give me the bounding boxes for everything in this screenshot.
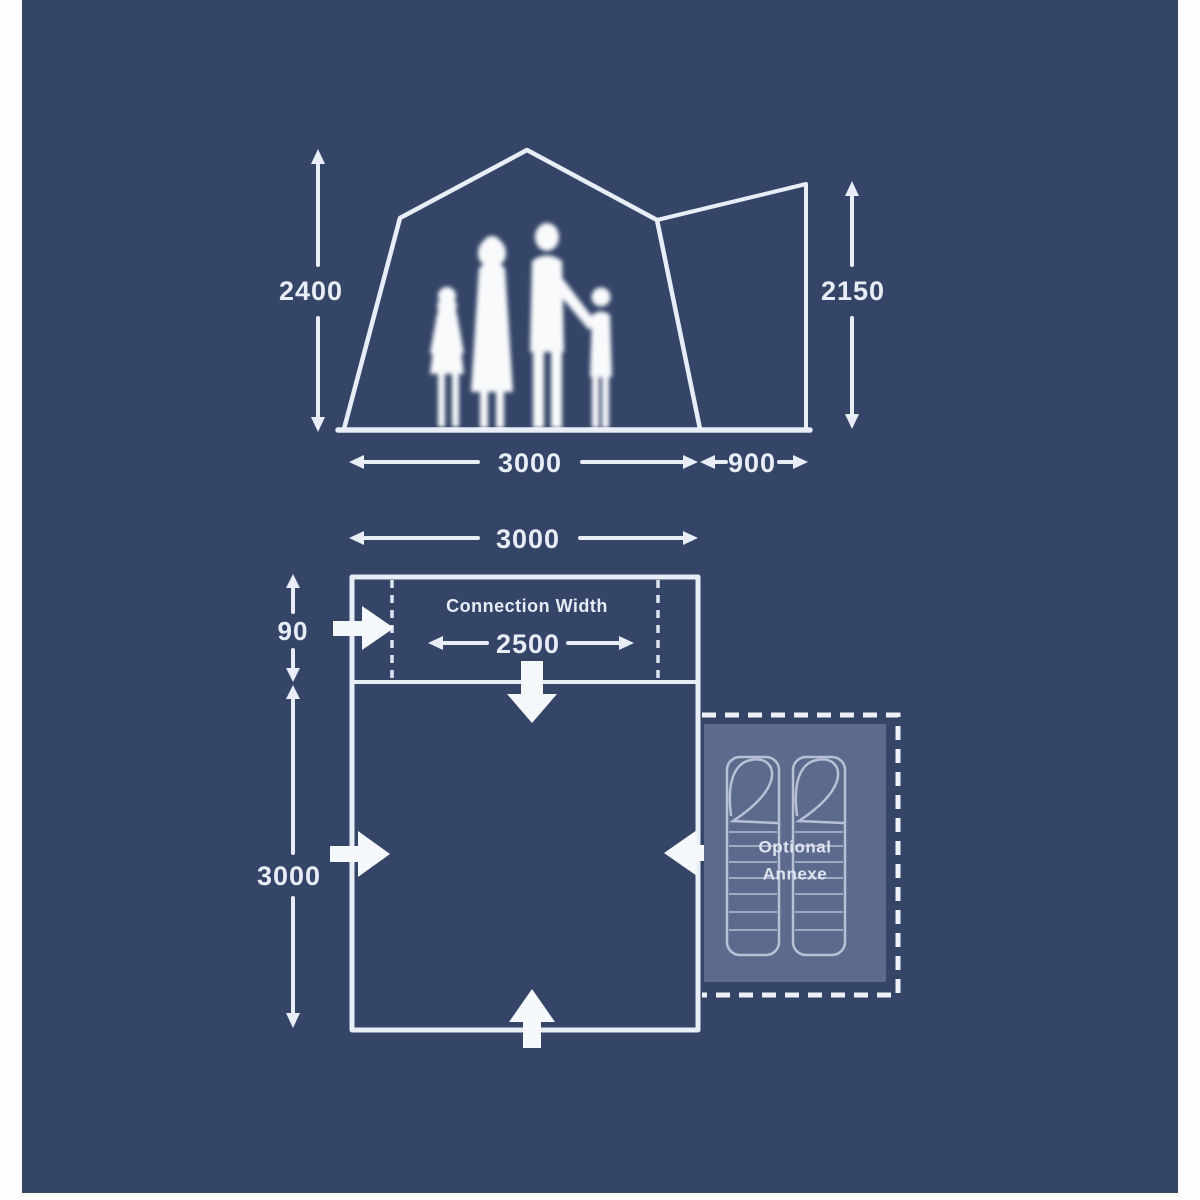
- annexe-label-line1: Optional: [759, 838, 832, 857]
- optional-annexe: Optional Annexe: [702, 715, 898, 995]
- dim-side-depth-label: 3000: [257, 861, 321, 891]
- dim-connection-depth-label: 90: [278, 616, 309, 646]
- dim-connection-width-label: 2500: [496, 629, 560, 659]
- connection-title: Connection Width: [446, 596, 608, 616]
- dim-top-width-label: 3000: [496, 524, 560, 554]
- diagram-canvas: 2400 2150 3000 900: [0, 0, 1200, 1200]
- dim-right-height-label: 2150: [821, 276, 885, 306]
- dim-left-height-label: 2400: [279, 276, 343, 306]
- dim-annex-width-label: 900: [728, 448, 776, 478]
- annexe-label-line2: Annexe: [763, 865, 827, 884]
- tent-dimension-diagram: 2400 2150 3000 900: [0, 0, 1200, 1200]
- dim-main-width-label: 3000: [498, 448, 562, 478]
